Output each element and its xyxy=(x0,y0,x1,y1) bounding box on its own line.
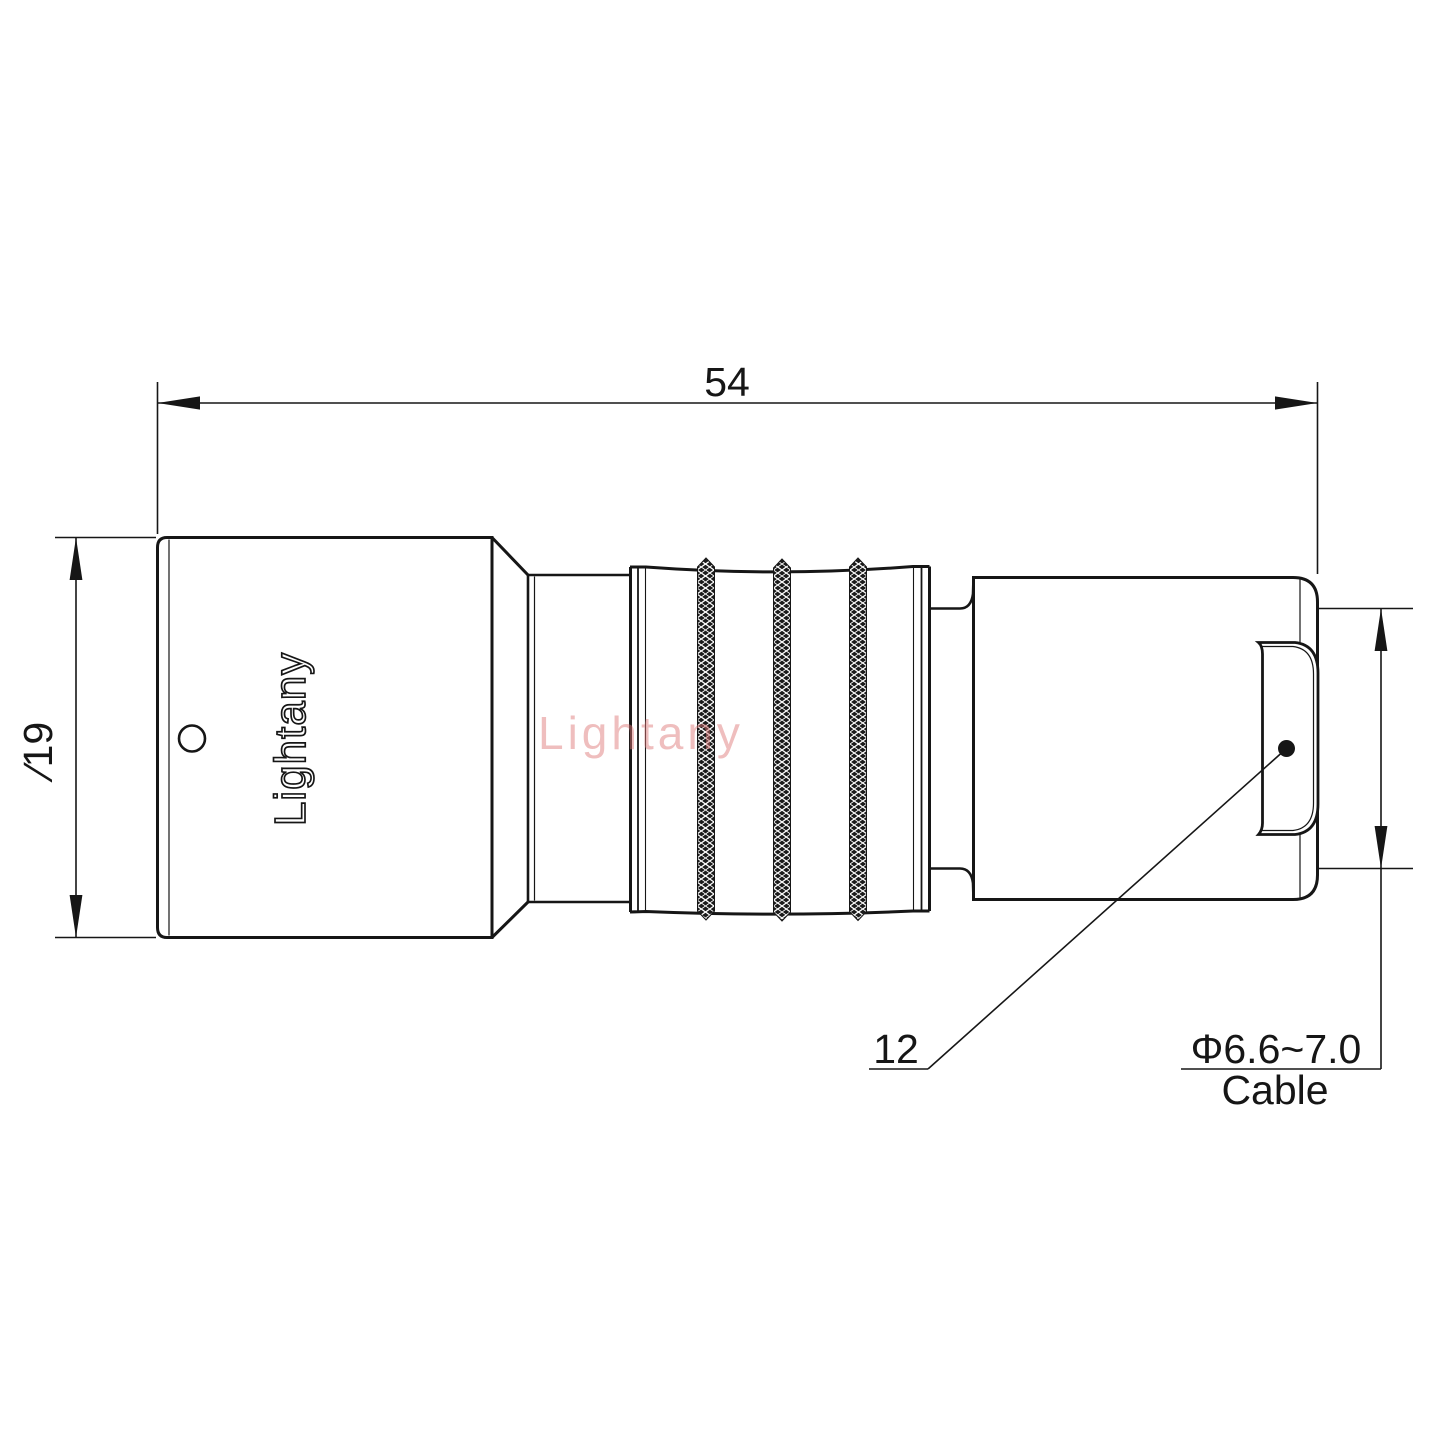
arrowhead-bottom xyxy=(70,895,83,938)
cable-boot xyxy=(1259,643,1319,835)
front-body xyxy=(158,538,493,938)
arrowhead-left xyxy=(158,396,201,409)
neck-bottom xyxy=(930,869,974,900)
taper-bottom xyxy=(492,902,528,938)
technical-drawing-canvas: 54 ∕19 Lightany xyxy=(0,0,1440,1440)
neck-groove xyxy=(930,578,974,899)
arrowhead-top xyxy=(70,538,83,581)
arrowhead-bottom xyxy=(1375,826,1388,869)
knurl-band-3 xyxy=(850,558,867,921)
front-body-outline xyxy=(158,538,493,938)
knurl-band-2 xyxy=(774,559,791,921)
cable-range-label: Φ6.6~7.0 xyxy=(1191,1026,1362,1072)
taper-top xyxy=(492,538,528,576)
locating-hole xyxy=(179,726,205,752)
arrowhead-right xyxy=(1275,396,1318,409)
connector-drawing: 54 ∕19 Lightany xyxy=(0,0,1440,1440)
engraved-logo: Lightany xyxy=(266,652,315,826)
knurled-grip xyxy=(630,558,930,921)
knurl-band-1 xyxy=(698,558,715,920)
cable-caption-label: Cable xyxy=(1221,1067,1328,1113)
cable-boot-outline xyxy=(1259,643,1319,835)
taper-section xyxy=(492,538,630,938)
item-number-label: 12 xyxy=(873,1026,919,1072)
arrowhead-top xyxy=(1375,609,1388,652)
overall-length-label: 54 xyxy=(704,359,750,405)
body-diameter-dimension xyxy=(55,538,156,938)
body-diameter-label: ∕19 xyxy=(15,722,61,783)
neck-top xyxy=(930,578,974,609)
